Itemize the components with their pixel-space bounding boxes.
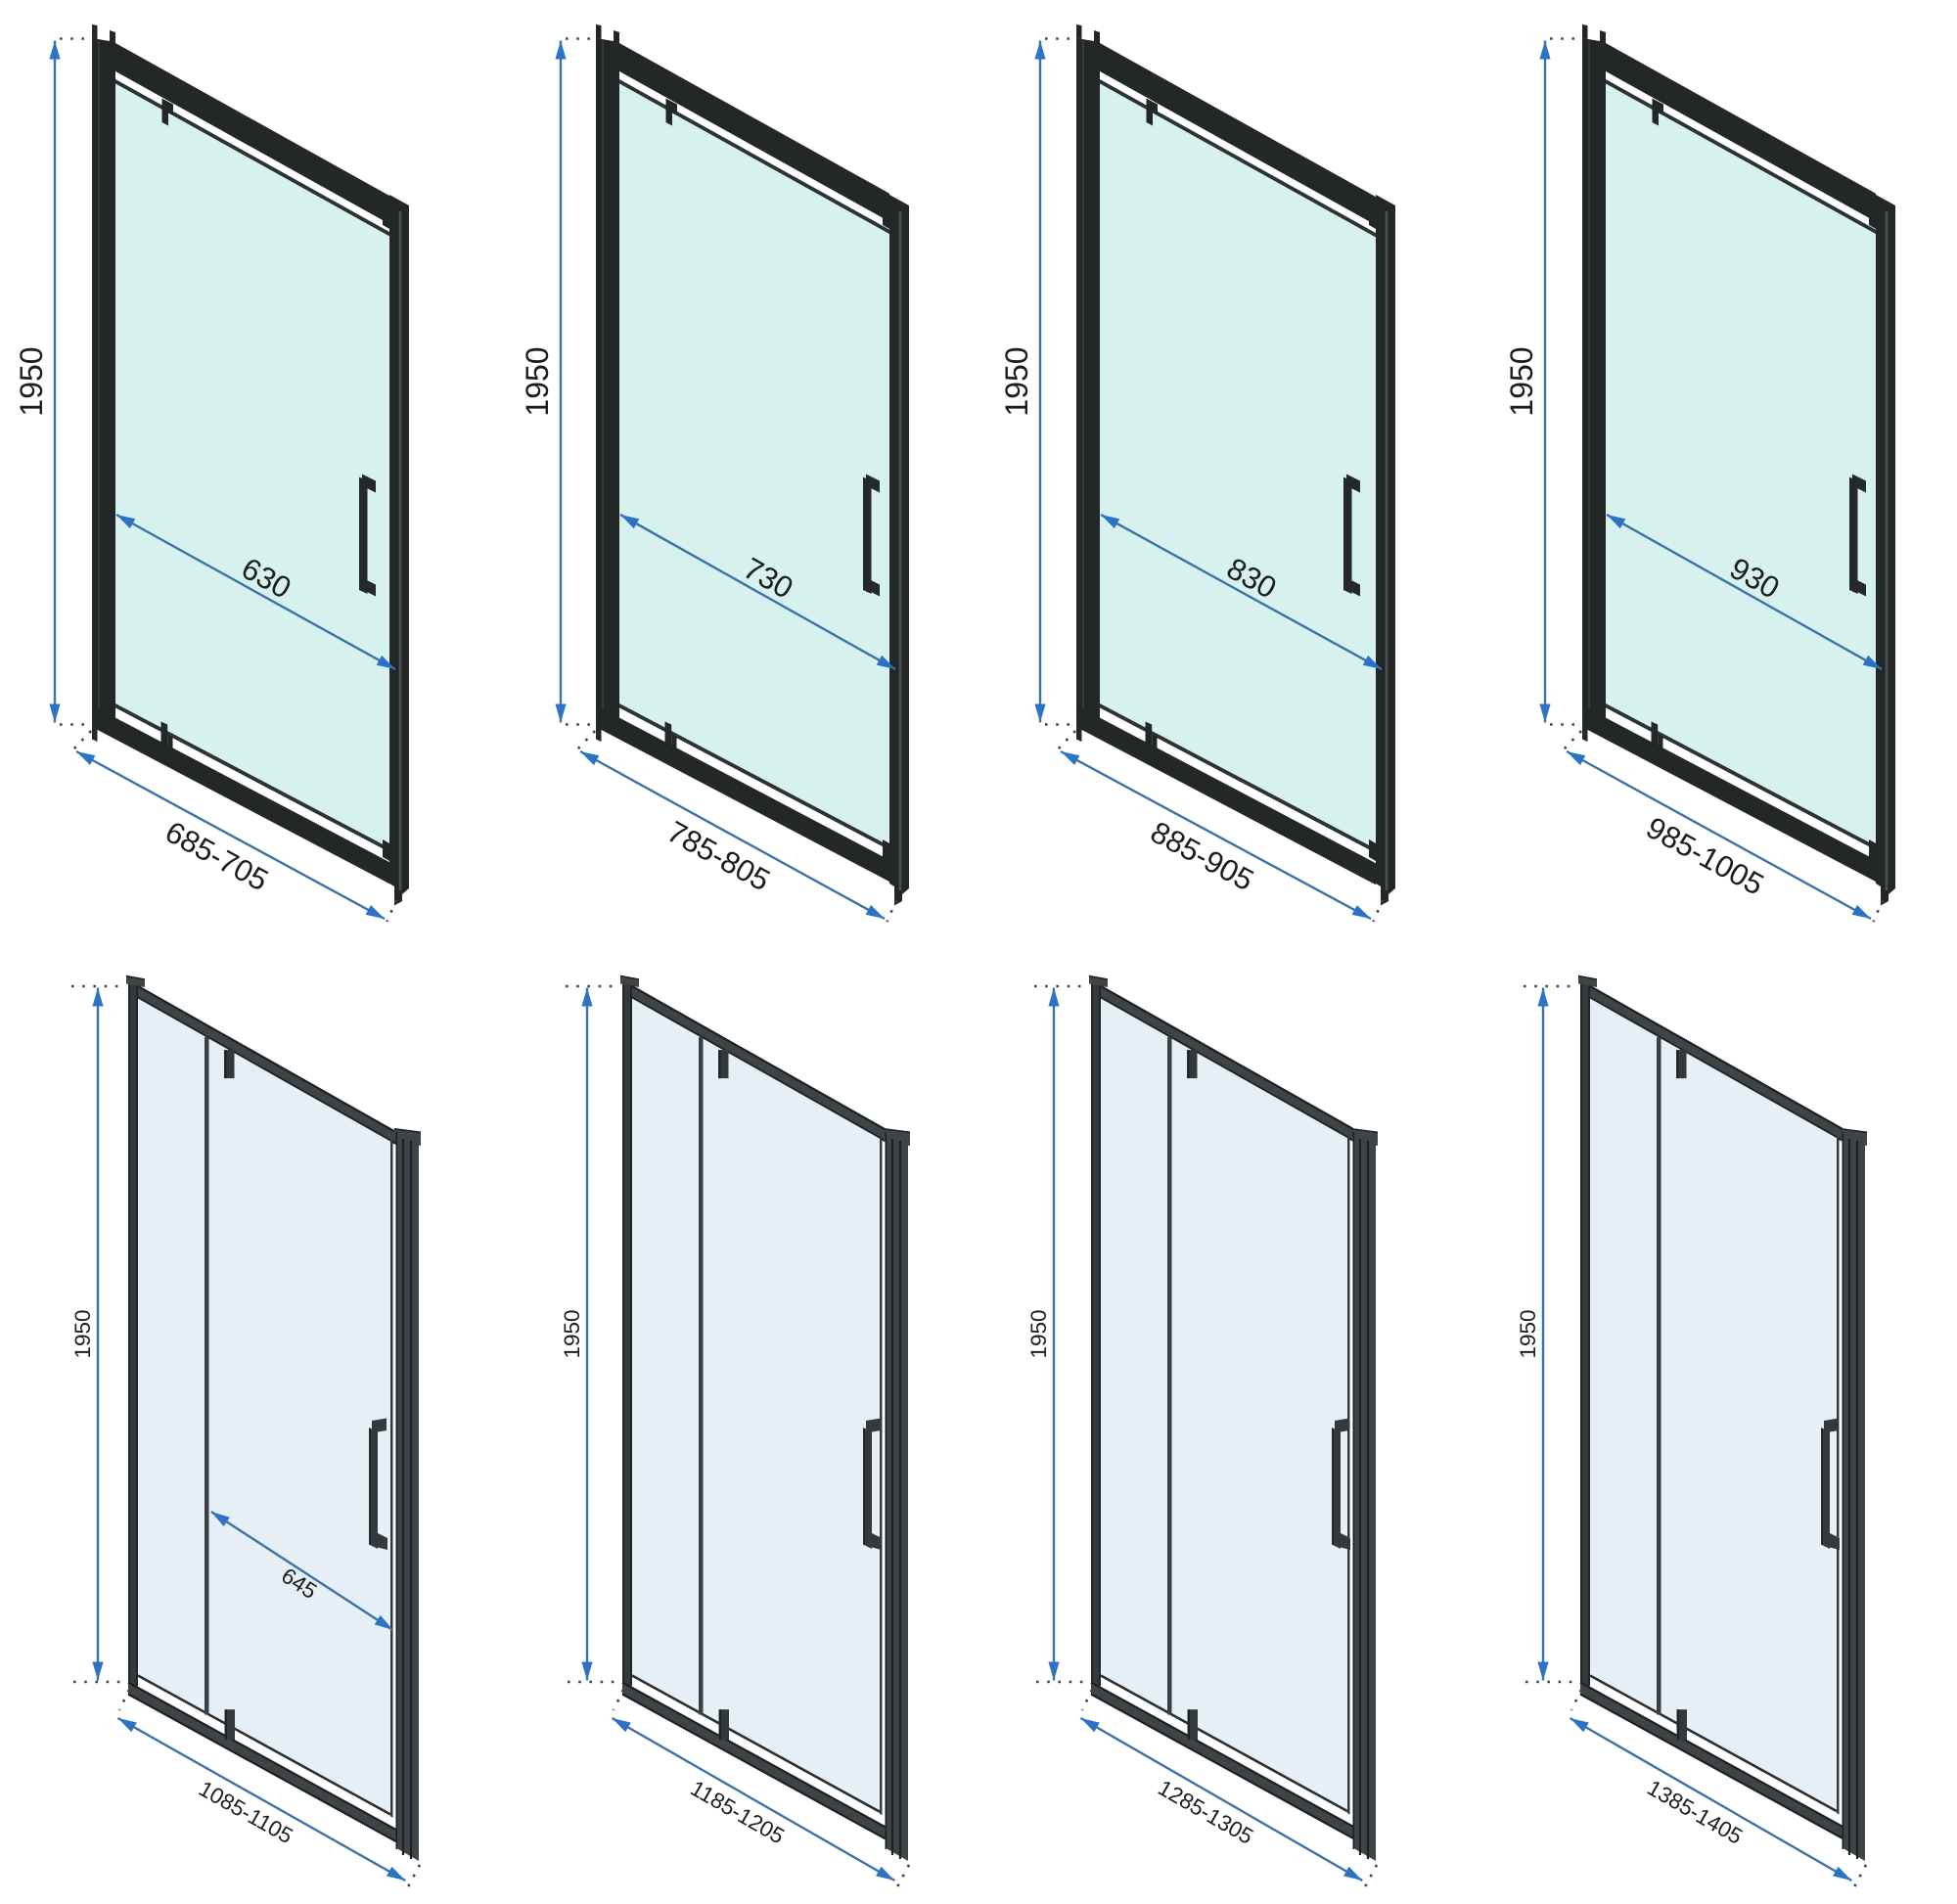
svg-text:1950: 1950: [520, 346, 555, 416]
svg-text:1950: 1950: [1516, 1309, 1540, 1358]
svg-text:1950: 1950: [1026, 1309, 1051, 1358]
svg-text:1950: 1950: [14, 346, 49, 416]
svg-text:1950: 1950: [70, 1309, 95, 1358]
svg-text:1950: 1950: [1504, 346, 1539, 416]
svg-text:1950: 1950: [999, 346, 1034, 416]
svg-text:1950: 1950: [560, 1309, 584, 1358]
